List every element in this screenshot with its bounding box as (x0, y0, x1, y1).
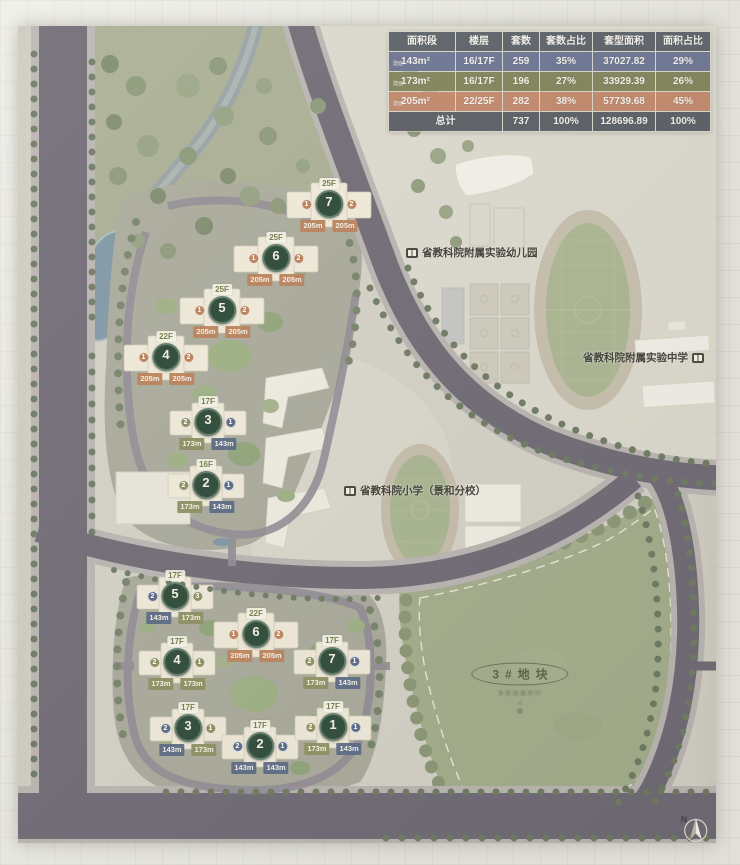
unit-area-tag: 205m (280, 274, 305, 286)
area-prefix: 建面 (393, 102, 400, 108)
plot-3-stamp (517, 709, 522, 714)
unit-area-tag: 173m (179, 612, 204, 624)
unit-area-tag: 143m (264, 762, 289, 774)
unit-area-tag: 173m (148, 678, 173, 690)
unit-area-tag: 205m (260, 650, 285, 662)
floor-label: 25F (266, 232, 286, 243)
cell: 128696.89 (593, 112, 655, 131)
building-number-badge: 5 (161, 582, 189, 610)
area-prefix: 建面 (393, 62, 400, 68)
unit-area-tag: 205m (247, 274, 272, 286)
unit-badge: 2 (305, 722, 316, 733)
building-number-badge: 5 (208, 296, 236, 324)
unit-area-tag: 205m (300, 220, 325, 232)
area-stats-table: 面积段 楼层 套数 套数占比 套型面积 面积占比 建面143m² 16/17F … (388, 31, 711, 132)
cell: 259 (503, 52, 539, 71)
floor-label: 17F (250, 720, 270, 731)
unit-badge: 2 (346, 199, 357, 210)
unit-area-tag: 143m (337, 743, 362, 755)
area-value: 173m² (401, 76, 430, 87)
cell: 57739.68 (593, 92, 655, 111)
unit-badge: 1 (277, 741, 288, 752)
table-total-row: 总计 737 100% 128696.89 100% (389, 112, 710, 131)
table-header-row: 面积段 楼层 套数 套数占比 套型面积 面积占比 (389, 32, 710, 51)
col-header: 楼层 (456, 32, 502, 51)
unit-area-tag: 173m (303, 677, 328, 689)
building-marker-north-3: 17F 231 173m143m (179, 396, 236, 450)
unit-badge: 2 (180, 417, 191, 428)
area-value: 143m² (401, 56, 430, 67)
unit-area-tag: 173m (192, 744, 217, 756)
unit-area-tag: 143m (336, 677, 361, 689)
unit-badge: 3 (192, 591, 203, 602)
building-number-badge: 4 (163, 648, 191, 676)
unit-area-tag: 143m (212, 438, 237, 450)
floor-label: 16F (196, 459, 216, 470)
building-marker-south-2: 17F 221 143m143m (231, 720, 288, 774)
unit-badge: 1 (350, 722, 361, 733)
school-icon (692, 353, 704, 363)
unit-badge: 1 (205, 723, 216, 734)
stadium-track (534, 210, 642, 410)
cell: 26% (656, 72, 710, 91)
building-number-badge: 4 (152, 343, 180, 371)
table-row-143: 建面143m² 16/17F 259 35% 37027.82 29% (389, 52, 710, 71)
building-marker-south-3: 17F 231 143m173m (159, 702, 216, 756)
unit-area-tag: 205m (226, 326, 251, 338)
unit-badge: 1 (194, 657, 205, 668)
unit-badge: 2 (304, 656, 315, 667)
building-number-badge: 2 (192, 471, 220, 499)
building-number-badge: 3 (174, 714, 202, 742)
unit-area-tag: 173m (177, 501, 202, 513)
primary-school-label: 省教科院小学（景和分校） (344, 483, 486, 498)
building-marker-south-4: 17F 241 173m173m (148, 636, 205, 690)
unit-area-tag: 143m (210, 501, 235, 513)
building-marker-north-6: 25F 162 205m205m (247, 232, 304, 286)
unit-badge: 1 (349, 656, 360, 667)
plot-3-note-2: ㎡ (517, 700, 522, 707)
unit-area-tag: 143m (231, 762, 256, 774)
unit-area-tag: 205m (137, 373, 162, 385)
cell: 29% (656, 52, 710, 71)
floor-label: 25F (212, 284, 232, 295)
school-icon (406, 248, 418, 258)
unit-badge: 2 (232, 741, 243, 752)
building-number-badge: 6 (262, 244, 290, 272)
col-header: 套型面积 (593, 32, 655, 51)
floor-label: 17F (178, 702, 198, 713)
floor-label: 25F (319, 178, 339, 189)
building-marker-south-6: 22F 162 205m205m (227, 608, 284, 662)
floor-label: 17F (322, 635, 342, 646)
unit-area-tag: 205m (193, 326, 218, 338)
area-prefix: 建面 (393, 82, 400, 88)
area-value: 205m² (401, 96, 430, 107)
total-label: 总计 (389, 112, 502, 131)
middle-school-label: 省教科院附属实验中学 (583, 350, 704, 365)
building-number-badge: 6 (242, 620, 270, 648)
north-compass: N (681, 815, 688, 826)
middle-school-label-text: 省教科院附属实验中学 (583, 350, 688, 365)
floor-label: 22F (246, 608, 266, 619)
col-header: 套数 (503, 32, 539, 51)
unit-badge: 1 (223, 480, 234, 491)
building-marker-north-4: 22F 142 205m205m (137, 331, 194, 385)
cell: 100% (656, 112, 710, 131)
col-header: 套数占比 (540, 32, 592, 51)
cell: 282 (503, 92, 539, 111)
cell: 16/17F (456, 52, 502, 71)
unit-area-tag: 205m (170, 373, 195, 385)
unit-badge: 2 (147, 591, 158, 602)
cell: 45% (656, 92, 710, 111)
north-arrow-icon (681, 815, 711, 845)
kindergarten-label-text: 省教科院附属实验幼儿园 (422, 245, 538, 260)
unit-area-tag: 173m (304, 743, 329, 755)
unit-badge: 1 (301, 199, 312, 210)
cell: 33929.39 (593, 72, 655, 91)
floor-label: 17F (198, 396, 218, 407)
kindergarten-label: 省教科院附属实验幼儿园 (406, 245, 538, 260)
building-marker-south-7: 17F 271 173m143m (303, 635, 360, 689)
unit-badge: 2 (273, 629, 284, 640)
building-marker-south-5: 17F 253 143m173m (146, 570, 203, 624)
site-plan-board: 面积段 楼层 套数 套数占比 套型面积 面积占比 建面143m² 16/17F … (18, 26, 716, 843)
cell: 27% (540, 72, 592, 91)
unit-badge: 2 (183, 352, 194, 363)
unit-badge: 2 (160, 723, 171, 734)
building-marker-south-1: 17F 211 173m143m (304, 701, 361, 755)
building-number-badge: 2 (246, 732, 274, 760)
building-number-badge: 1 (319, 713, 347, 741)
unit-badge: 1 (138, 352, 149, 363)
cell: 196 (503, 72, 539, 91)
building-marker-north-7: 25F 172 205m205m (300, 178, 357, 232)
cell: 37027.82 (593, 52, 655, 71)
school-icon (344, 486, 356, 496)
unit-badge: 1 (194, 305, 205, 316)
building-number-badge: 7 (315, 190, 343, 218)
floor-label: 17F (167, 636, 187, 647)
cell: 22/25F (456, 92, 502, 111)
unit-area-tag: 143m (159, 744, 184, 756)
building-number-badge: 3 (194, 408, 222, 436)
site-plan-svg (18, 26, 716, 843)
unit-badge: 2 (149, 657, 160, 668)
cell: 737 (503, 112, 539, 131)
building-marker-north-5: 25F 152 205m205m (193, 284, 250, 338)
unit-area-tag: 173m (181, 678, 206, 690)
col-header: 面积占比 (656, 32, 710, 51)
unit-badge: 1 (228, 629, 239, 640)
table-row-205: 建面205m² 22/25F 282 38% 57739.68 45% (389, 92, 710, 111)
floor-label: 17F (323, 701, 343, 712)
unit-area-tag: 205m (333, 220, 358, 232)
unit-badge: 2 (293, 253, 304, 264)
table-row-173: 建面173m² 16/17F 196 27% 33929.39 26% (389, 72, 710, 91)
unit-badge: 2 (178, 480, 189, 491)
floor-label: 17F (165, 570, 185, 581)
primary-school-label-text: 省教科院小学（景和分校） (360, 483, 486, 498)
cell: 38% (540, 92, 592, 111)
unit-area-tag: 205m (227, 650, 252, 662)
cell: 100% (540, 112, 592, 131)
floor-label: 22F (156, 331, 176, 342)
building-number-badge: 7 (318, 647, 346, 675)
plot-3-note: 净用地面积约 (497, 689, 542, 698)
unit-badge: 1 (248, 253, 259, 264)
cell: 35% (540, 52, 592, 71)
unit-badge: 1 (225, 417, 236, 428)
unit-badge: 2 (239, 305, 250, 316)
water-feature (213, 538, 231, 546)
unit-area-tag: 173m (179, 438, 204, 450)
building-marker-north-2: 16F 221 173m143m (177, 459, 234, 513)
col-header: 面积段 (389, 32, 455, 51)
cell: 16/17F (456, 72, 502, 91)
plot-3-name: 3#地块 (471, 663, 568, 686)
plot-3-label: 3#地块 净用地面积约 ㎡ (471, 663, 568, 714)
unit-area-tag: 143m (146, 612, 171, 624)
